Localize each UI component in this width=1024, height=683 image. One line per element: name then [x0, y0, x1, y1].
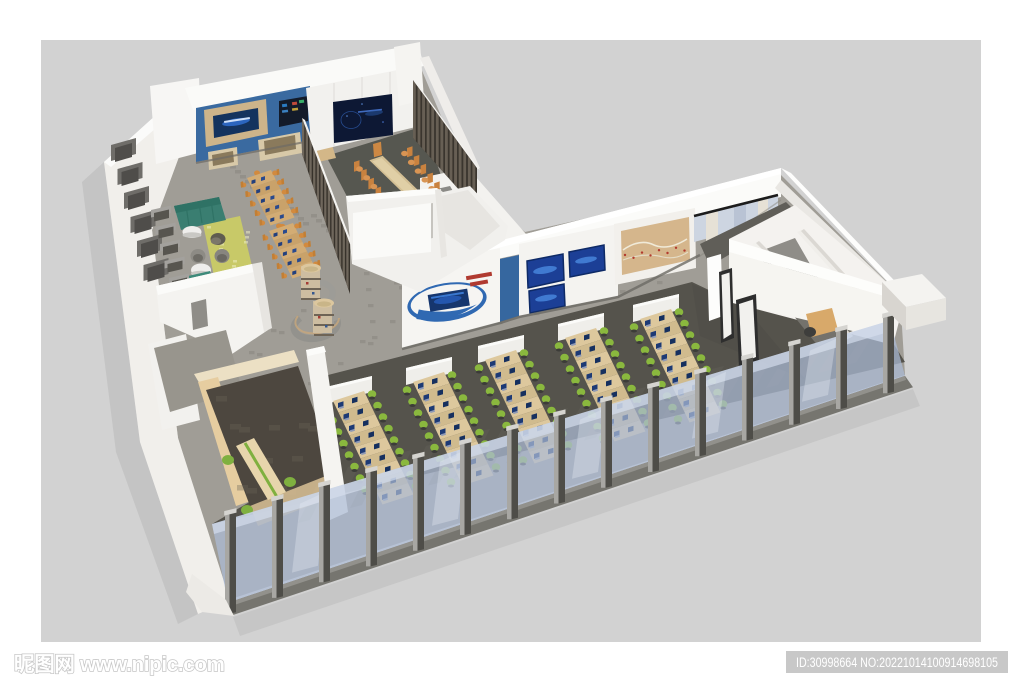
- svg-text:昵图网 www.nipic.com: 昵图网 www.nipic.com: [14, 653, 225, 676]
- svg-text:ID:30998664 NO:202210141009146: ID:30998664 NO:20221014100914698105: [796, 655, 998, 670]
